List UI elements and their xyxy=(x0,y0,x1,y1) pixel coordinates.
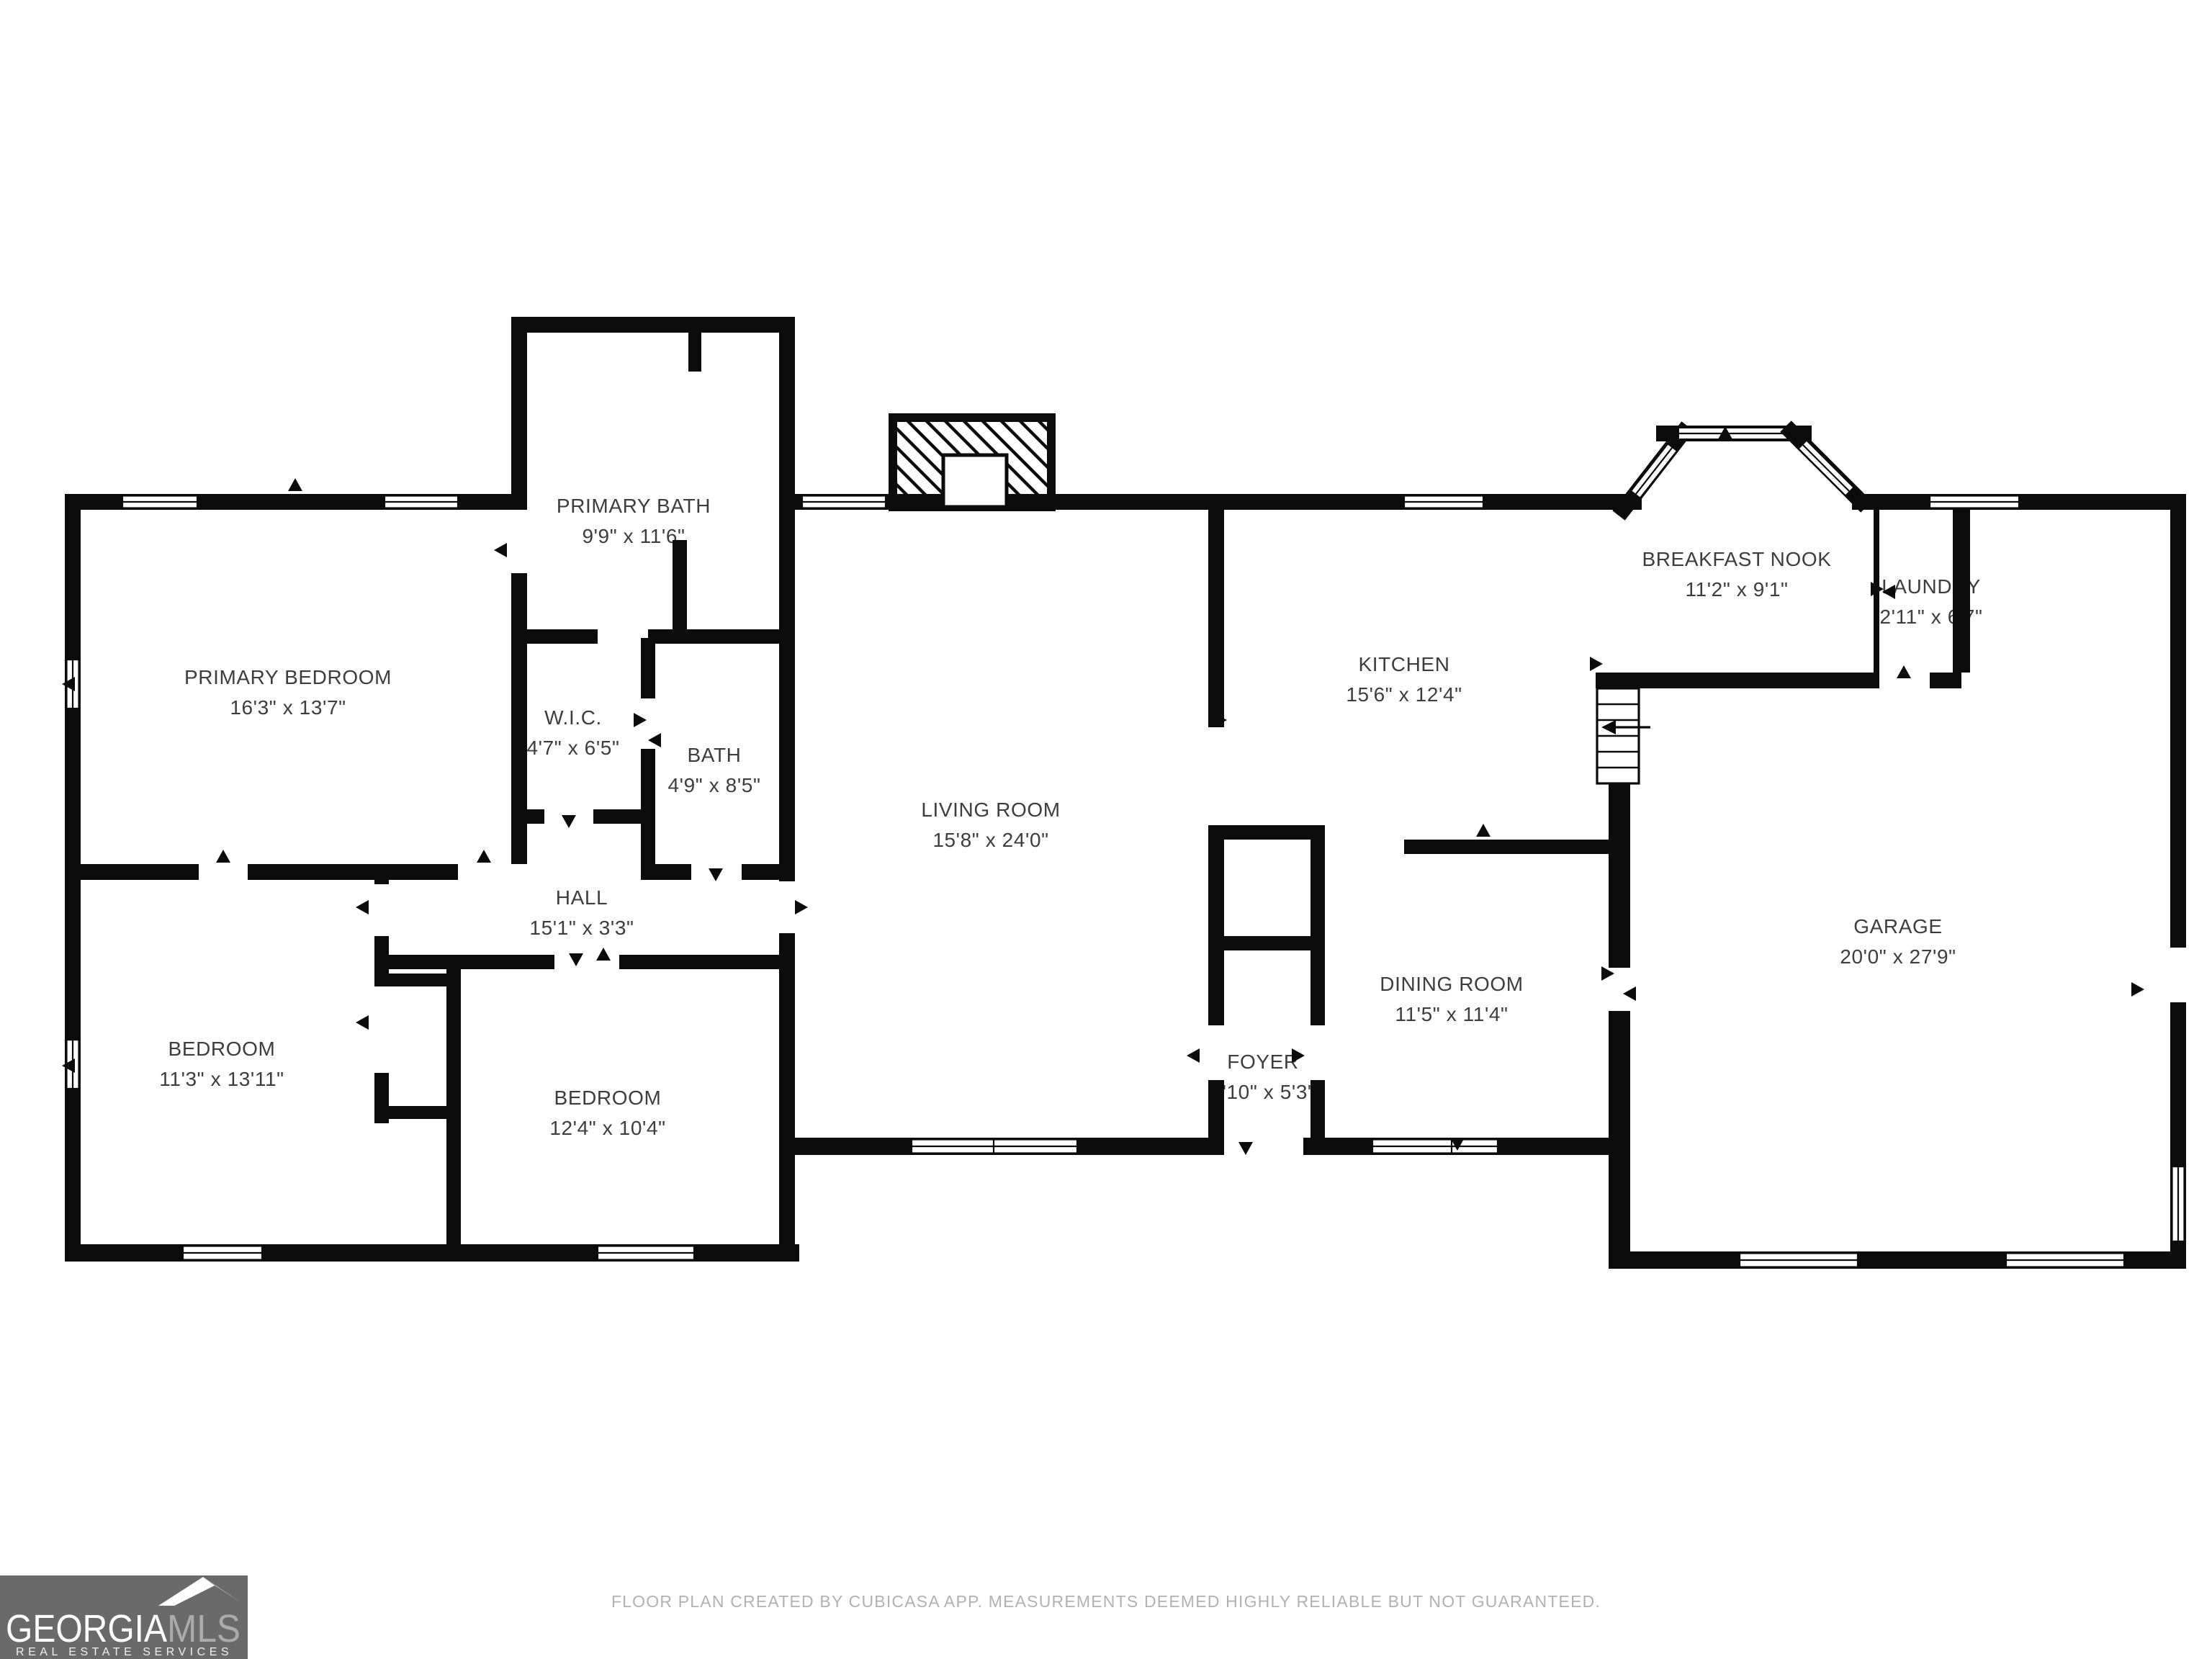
disclaimer-text: FLOOR PLAN CREATED BY CUBICASA APP. MEAS… xyxy=(611,1592,1601,1611)
logo-tagline: REAL ESTATE SERVICES xyxy=(16,1646,232,1658)
door-swing-marker xyxy=(709,868,723,881)
door-swing-marker xyxy=(634,713,647,727)
fireplace xyxy=(893,418,1051,507)
door-swing-marker xyxy=(1238,1142,1253,1155)
room-dims-dining-room: 11'5" x 11'4" xyxy=(1395,1003,1508,1025)
window xyxy=(1930,495,2019,508)
window xyxy=(122,495,197,508)
door-swing-marker xyxy=(1476,824,1491,837)
room-label-dining-room: DINING ROOM xyxy=(1380,973,1523,995)
room-label-bedroom-mid: BEDROOM xyxy=(554,1087,662,1109)
door-swing-marker xyxy=(1623,986,1636,1001)
garage-door-window xyxy=(1740,1253,1858,1267)
room-dims-wic: 4'7" x 6'5" xyxy=(526,737,619,759)
room-dims-bath: 4'9" x 8'5" xyxy=(667,774,760,796)
door-swing-marker xyxy=(795,900,808,914)
room-label-bath: BATH xyxy=(688,744,742,766)
room-dims-living-room: 15'8" x 24'0" xyxy=(932,829,1048,851)
logo-brand-primary: GEORGIA xyxy=(6,1607,167,1650)
room-dims-primary-bath: 9'9" x 11'6" xyxy=(582,525,685,547)
room-label-hall: HALL xyxy=(556,886,608,909)
room-dims-bedroom-left: 11'3" x 13'11" xyxy=(159,1068,284,1090)
door-swing-marker xyxy=(288,478,302,491)
bay-window xyxy=(1619,426,1866,516)
window xyxy=(802,495,886,508)
window xyxy=(2172,1166,2185,1241)
door-swing-marker xyxy=(1897,665,1911,678)
floor-plan-canvas: PRIMARY BATH 9'9" x 11'6" PRIMARY BEDROO… xyxy=(0,0,2212,1659)
door-swing-marker xyxy=(648,733,661,747)
room-label-living-room: LIVING ROOM xyxy=(921,799,1060,821)
door-swing-marker xyxy=(216,850,230,863)
logo-brand-text: GEORGIAMLS xyxy=(6,1607,240,1650)
room-label-garage: GARAGE xyxy=(1853,915,1942,938)
firebox xyxy=(943,455,1007,507)
room-dims-hall: 15'1" x 3'3" xyxy=(529,917,634,939)
room-label-wic: W.I.C. xyxy=(544,706,602,729)
door-swing-marker xyxy=(2131,982,2144,997)
door-swing-marker xyxy=(1601,966,1614,981)
window xyxy=(1404,495,1483,508)
room-label-primary-bedroom: PRIMARY BEDROOM xyxy=(184,666,392,688)
window xyxy=(1372,1139,1498,1154)
room-dims-foyer: 3'10" x 5'3" xyxy=(1210,1081,1315,1103)
door-swing-marker xyxy=(356,1015,369,1030)
garage-door-window xyxy=(2006,1253,2124,1267)
door-swing-markers xyxy=(62,426,2144,1155)
room-labels: PRIMARY BATH 9'9" x 11'6" PRIMARY BEDROO… xyxy=(159,495,1982,1139)
door-swing-marker xyxy=(596,948,611,961)
room-dims-garage: 20'0" x 27'9" xyxy=(1840,945,1956,968)
room-label-bedroom-left: BEDROOM xyxy=(168,1038,276,1060)
room-dims-primary-bedroom: 16'3" x 13'7" xyxy=(230,696,346,719)
door-swing-marker xyxy=(1590,657,1603,671)
door-swing-marker xyxy=(562,815,576,828)
window xyxy=(598,1246,694,1260)
room-label-breakfast-nook: BREAKFAST NOOK xyxy=(1642,548,1831,570)
room-label-primary-bath: PRIMARY BATH xyxy=(557,495,711,517)
floor-plan-page: PRIMARY BATH 9'9" x 11'6" PRIMARY BEDROO… xyxy=(0,0,2212,1659)
room-dims-bedroom-mid: 12'4" x 10'4" xyxy=(549,1117,665,1139)
georgiamls-logo: GEORGIAMLS REAL ESTATE SERVICES xyxy=(0,1575,248,1659)
door-swing-marker xyxy=(569,953,583,966)
walls xyxy=(65,317,2186,1269)
room-label-kitchen: KITCHEN xyxy=(1358,653,1449,675)
door-swing-marker xyxy=(494,543,507,557)
window xyxy=(385,495,458,508)
window xyxy=(912,1139,1077,1154)
room-dims-kitchen: 15'6" x 12'4" xyxy=(1346,683,1462,706)
window xyxy=(183,1246,262,1260)
door-swing-marker xyxy=(356,900,369,914)
door-swing-marker xyxy=(477,850,491,863)
room-label-foyer: FOYER xyxy=(1227,1051,1298,1073)
logo-brand-secondary: MLS xyxy=(167,1607,240,1650)
staircase xyxy=(1597,688,1650,783)
door-swing-marker xyxy=(1187,1048,1200,1063)
room-dims-breakfast-nook: 11'2" x 9'1" xyxy=(1685,578,1788,601)
